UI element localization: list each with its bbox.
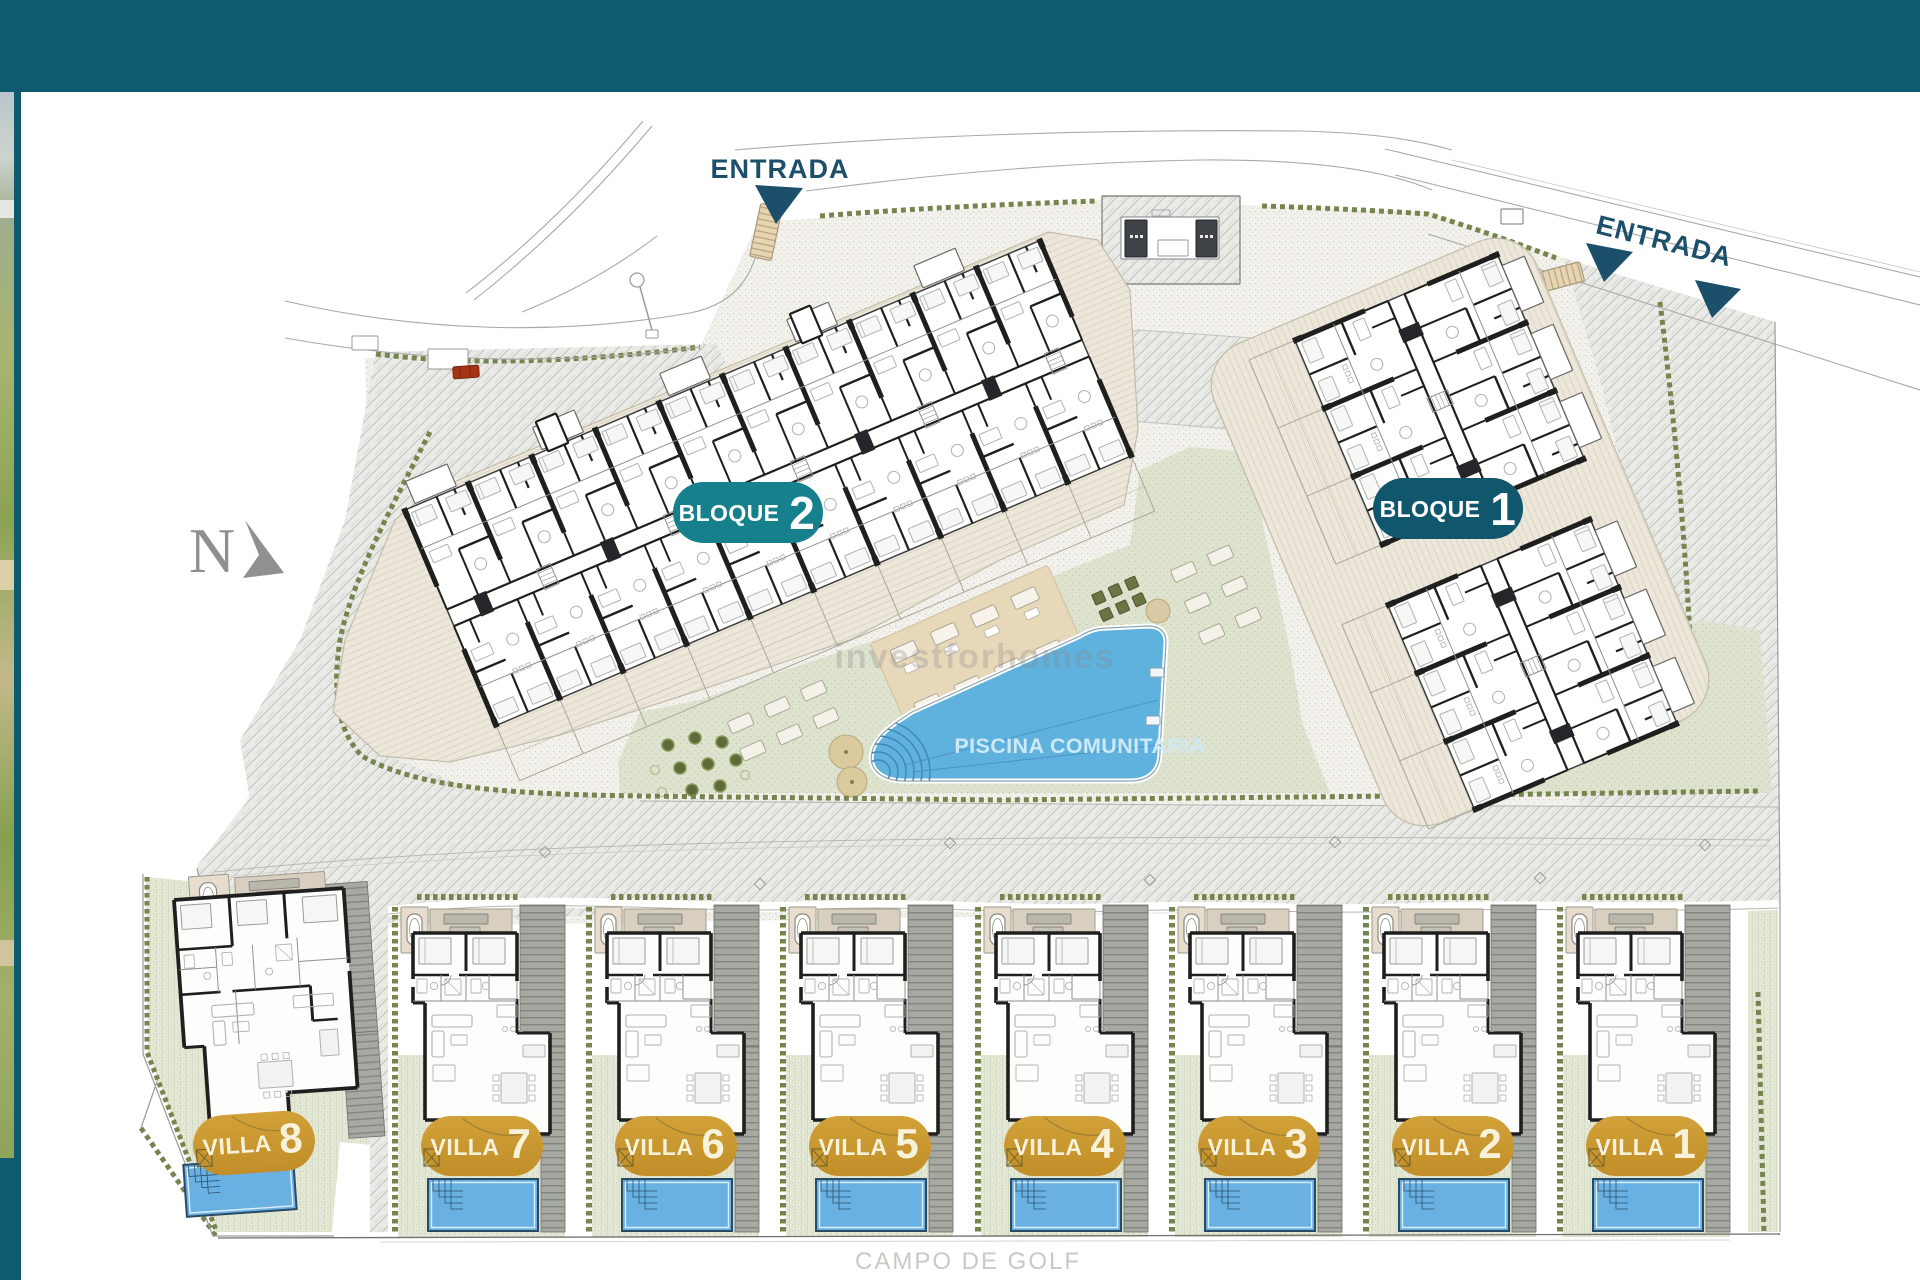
- svg-text:VILLA: VILLA: [625, 1134, 694, 1160]
- svg-text:5: 5: [895, 1120, 918, 1167]
- svg-text:1: 1: [1490, 483, 1516, 535]
- svg-text:BLOQUE: BLOQUE: [1380, 496, 1481, 522]
- svg-text:N: N: [189, 515, 235, 586]
- svg-text:BLOQUE: BLOQUE: [679, 500, 780, 526]
- svg-text:VILLA: VILLA: [1402, 1134, 1471, 1160]
- svg-text:4: 4: [1090, 1120, 1114, 1167]
- svg-text:CAMPO DE GOLF: CAMPO DE GOLF: [855, 1248, 1081, 1275]
- svg-text:VILLA: VILLA: [819, 1134, 888, 1160]
- svg-text:2: 2: [789, 487, 815, 539]
- svg-text:8: 8: [277, 1114, 304, 1163]
- svg-text:ENTRADA: ENTRADA: [711, 154, 850, 184]
- svg-text:VILLA: VILLA: [1014, 1134, 1083, 1160]
- svg-text:1: 1: [1672, 1120, 1695, 1167]
- svg-text:VILLA: VILLA: [431, 1134, 500, 1160]
- svg-text:VILLA: VILLA: [202, 1130, 273, 1161]
- svg-text:7: 7: [507, 1120, 530, 1167]
- svg-text:PISCINA COMUNITARIA: PISCINA COMUNITARIA: [954, 734, 1205, 758]
- svg-text:6: 6: [701, 1120, 724, 1167]
- svg-text:investforhomes: investforhomes: [834, 638, 1115, 676]
- svg-text:VILLA: VILLA: [1208, 1134, 1277, 1160]
- svg-text:3: 3: [1284, 1120, 1307, 1167]
- svg-text:VILLA: VILLA: [1596, 1134, 1665, 1160]
- svg-text:2: 2: [1478, 1120, 1501, 1167]
